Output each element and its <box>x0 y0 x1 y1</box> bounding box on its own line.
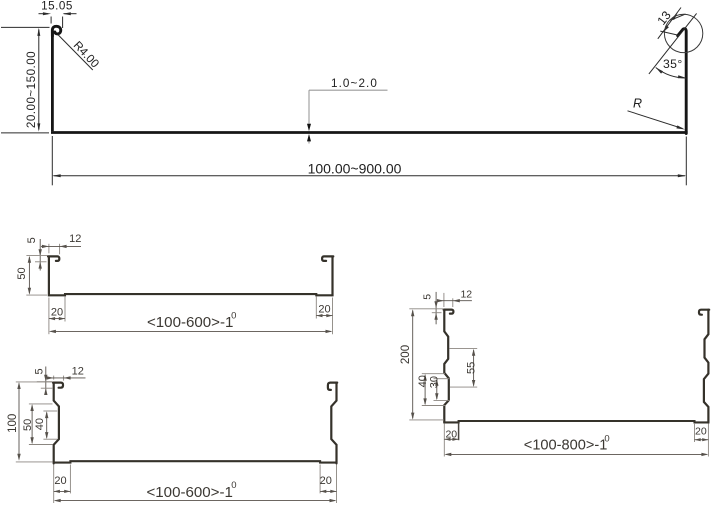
svg-text:100.00~900.00: 100.00~900.00 <box>308 160 402 176</box>
svg-text:20.00~150.00: 20.00~150.00 <box>25 51 38 128</box>
svg-text:55: 55 <box>465 362 477 374</box>
svg-text:35°: 35° <box>663 57 683 71</box>
svg-text:12: 12 <box>460 289 472 301</box>
svg-text:50: 50 <box>22 419 34 431</box>
svg-text:5: 5 <box>421 294 433 300</box>
svg-text:<100-800>-1: <100-800>-1 <box>524 437 608 453</box>
svg-text:5: 5 <box>26 237 38 243</box>
svg-text:20: 20 <box>51 307 63 319</box>
svg-text:30: 30 <box>428 376 440 388</box>
svg-text:100: 100 <box>7 414 19 433</box>
svg-text:12: 12 <box>72 365 84 377</box>
svg-text:20: 20 <box>445 428 457 440</box>
svg-text:0: 0 <box>231 480 236 491</box>
svg-text:1.0~2.0: 1.0~2.0 <box>331 77 378 90</box>
svg-text:50: 50 <box>16 267 28 279</box>
svg-text:20: 20 <box>320 475 332 487</box>
svg-text:20: 20 <box>318 304 330 316</box>
svg-text:0: 0 <box>604 434 609 445</box>
svg-text:200: 200 <box>400 345 412 364</box>
svg-text:12: 12 <box>69 233 81 245</box>
svg-text:40: 40 <box>417 375 429 387</box>
svg-text:R4.00: R4.00 <box>71 39 102 71</box>
svg-text:0: 0 <box>231 310 236 321</box>
svg-text:20: 20 <box>695 426 707 438</box>
svg-text:15.05: 15.05 <box>41 0 73 13</box>
svg-text:20: 20 <box>54 475 66 487</box>
svg-text:5: 5 <box>34 368 46 374</box>
svg-text:<100-600>-1: <100-600>-1 <box>147 314 233 331</box>
svg-text:<100-600>-1: <100-600>-1 <box>146 484 232 501</box>
svg-text:40: 40 <box>34 418 46 430</box>
svg-text:13: 13 <box>654 8 674 27</box>
svg-text:R: R <box>633 97 642 111</box>
